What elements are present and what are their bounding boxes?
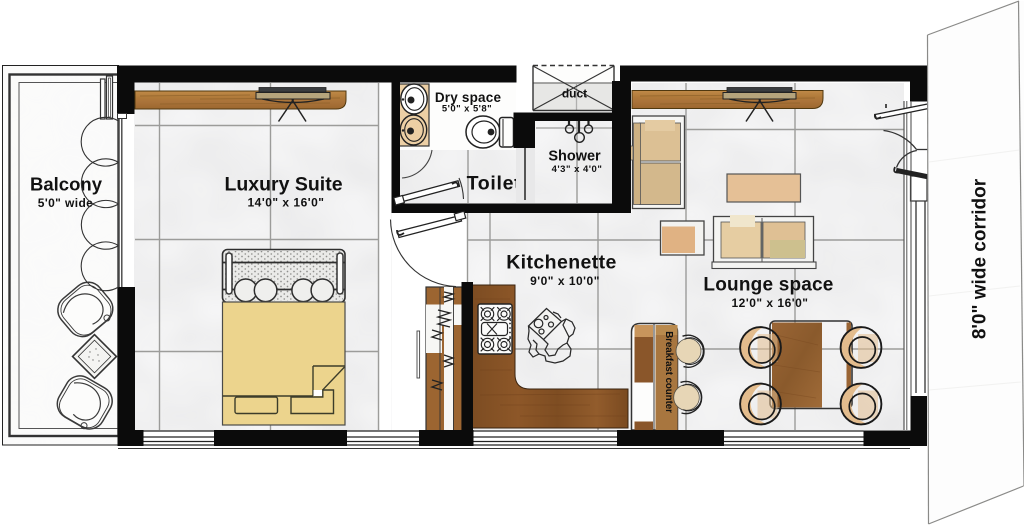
svg-text:5'0" x 5'8": 5'0" x 5'8": [442, 104, 492, 115]
svg-text:9'0" x 10'0": 9'0" x 10'0": [530, 274, 600, 288]
svg-text:Breakfast counter: Breakfast counter: [663, 331, 674, 413]
svg-text:duct: duct: [562, 87, 587, 101]
svg-text:5'0" wide: 5'0" wide: [38, 196, 94, 210]
svg-text:Lounge space: Lounge space: [703, 275, 833, 296]
svg-text:Balcony: Balcony: [30, 174, 103, 195]
svg-text:Kitchenette: Kitchenette: [506, 252, 617, 274]
svg-text:Luxury Suite: Luxury Suite: [224, 174, 342, 196]
svg-text:Shower: Shower: [548, 149, 601, 165]
svg-text:4'3" x 4'0": 4'3" x 4'0": [552, 164, 603, 175]
svg-text:14'0" x 16'0": 14'0" x 16'0": [248, 196, 325, 210]
svg-text:8'0" wide corridor: 8'0" wide corridor: [970, 178, 991, 339]
svg-text:Toilet: Toilet: [467, 173, 522, 195]
svg-text:12'0" x 16'0": 12'0" x 16'0": [732, 296, 809, 310]
